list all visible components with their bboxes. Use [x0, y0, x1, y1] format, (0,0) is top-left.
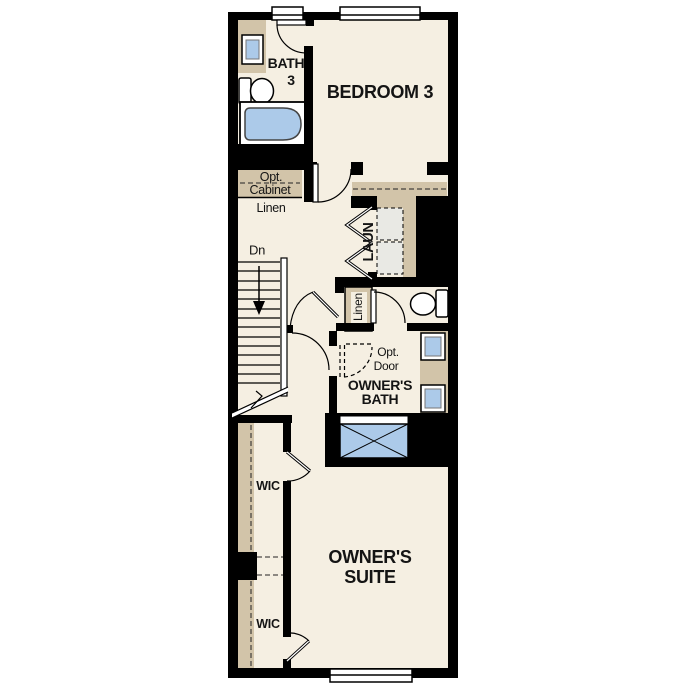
bedroom3-closet-shelf: [352, 182, 447, 198]
bath3-label-line1: BATH: [268, 56, 305, 70]
opt-door-label-line1: Opt.: [377, 346, 398, 358]
laundry-counter: [403, 196, 416, 284]
wall: [283, 481, 291, 637]
bath3-sink: [246, 40, 259, 59]
wall: [238, 144, 304, 170]
dryer: [377, 242, 403, 274]
bedroom3-label: BEDROOM 3: [327, 83, 433, 101]
stair-railing: [281, 258, 287, 396]
laundry-label: LAUN: [362, 222, 377, 261]
opt-door-label-line2: Door: [374, 360, 399, 372]
stairs-down-label: Dn: [249, 244, 265, 257]
wall: [228, 415, 292, 423]
wall: [304, 46, 313, 202]
shower-entry: [340, 416, 408, 424]
linen-shelf-label: Linen: [256, 202, 285, 215]
linen-closet-label: Linen: [352, 293, 364, 321]
wall: [448, 12, 458, 678]
bath3-toilet-tank: [239, 78, 251, 104]
wall: [427, 162, 448, 175]
floor-plan: BATH 3 BEDROOM 3 Opt. Cabinet Linen Dn L…: [0, 0, 687, 687]
owners-sink1: [425, 337, 441, 356]
support-post: [237, 552, 257, 580]
wall: [283, 423, 291, 452]
wic-lower-label: WIC: [256, 618, 279, 631]
owners-toilet-tank: [436, 290, 448, 317]
opt-cabinet-label-line2: Cabinet: [250, 184, 291, 197]
bath3-label-line2: 3: [287, 73, 295, 87]
wall: [336, 323, 374, 331]
wall: [336, 277, 448, 287]
owners-suite-label-line1: OWNER'S: [328, 548, 411, 566]
bath3-door-leaf: [277, 20, 306, 25]
wall: [335, 277, 344, 293]
wall: [351, 162, 363, 175]
window: [340, 7, 420, 20]
bath3-bathtub: [245, 108, 301, 140]
owners-sink2: [425, 389, 441, 408]
wall: [329, 331, 337, 346]
window: [272, 7, 303, 20]
opt-cabinet-label-line1: Opt.: [260, 171, 282, 184]
bath3-toilet-bowl: [251, 79, 274, 104]
wic-shelf: [238, 423, 254, 668]
shower: [340, 416, 408, 458]
wall: [306, 20, 314, 26]
wic-upper-label: WIC: [256, 480, 279, 493]
washer: [377, 208, 403, 240]
wall: [416, 196, 448, 287]
wall: [407, 323, 448, 331]
owners-bath-label-line1: OWNER'S: [348, 378, 412, 392]
bedroom3-door-leaf: [313, 164, 318, 202]
wall: [228, 12, 238, 678]
toilet-room-door-leaf: [371, 290, 376, 323]
owners-toilet-bowl: [411, 293, 436, 315]
owners-bath-label-line2: BATH: [362, 392, 399, 406]
owners-suite-label-line2: SUITE: [344, 568, 396, 586]
